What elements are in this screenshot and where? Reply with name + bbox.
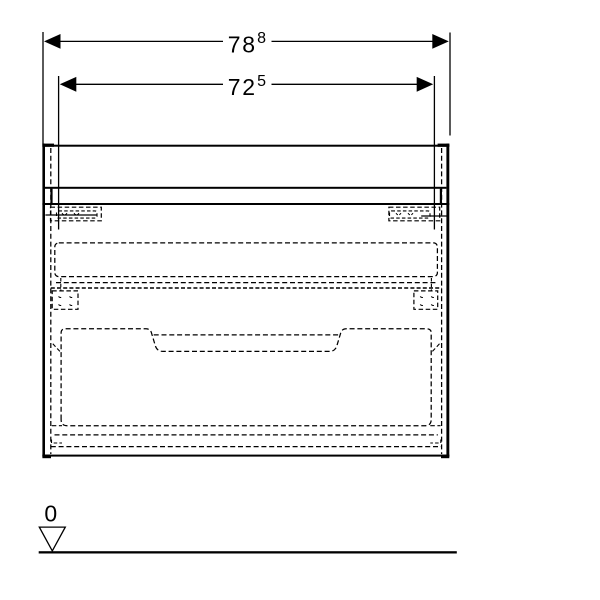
svg-text:788: 788 xyxy=(228,30,266,57)
svg-text:725: 725 xyxy=(228,73,266,100)
svg-text:0: 0 xyxy=(44,501,57,527)
